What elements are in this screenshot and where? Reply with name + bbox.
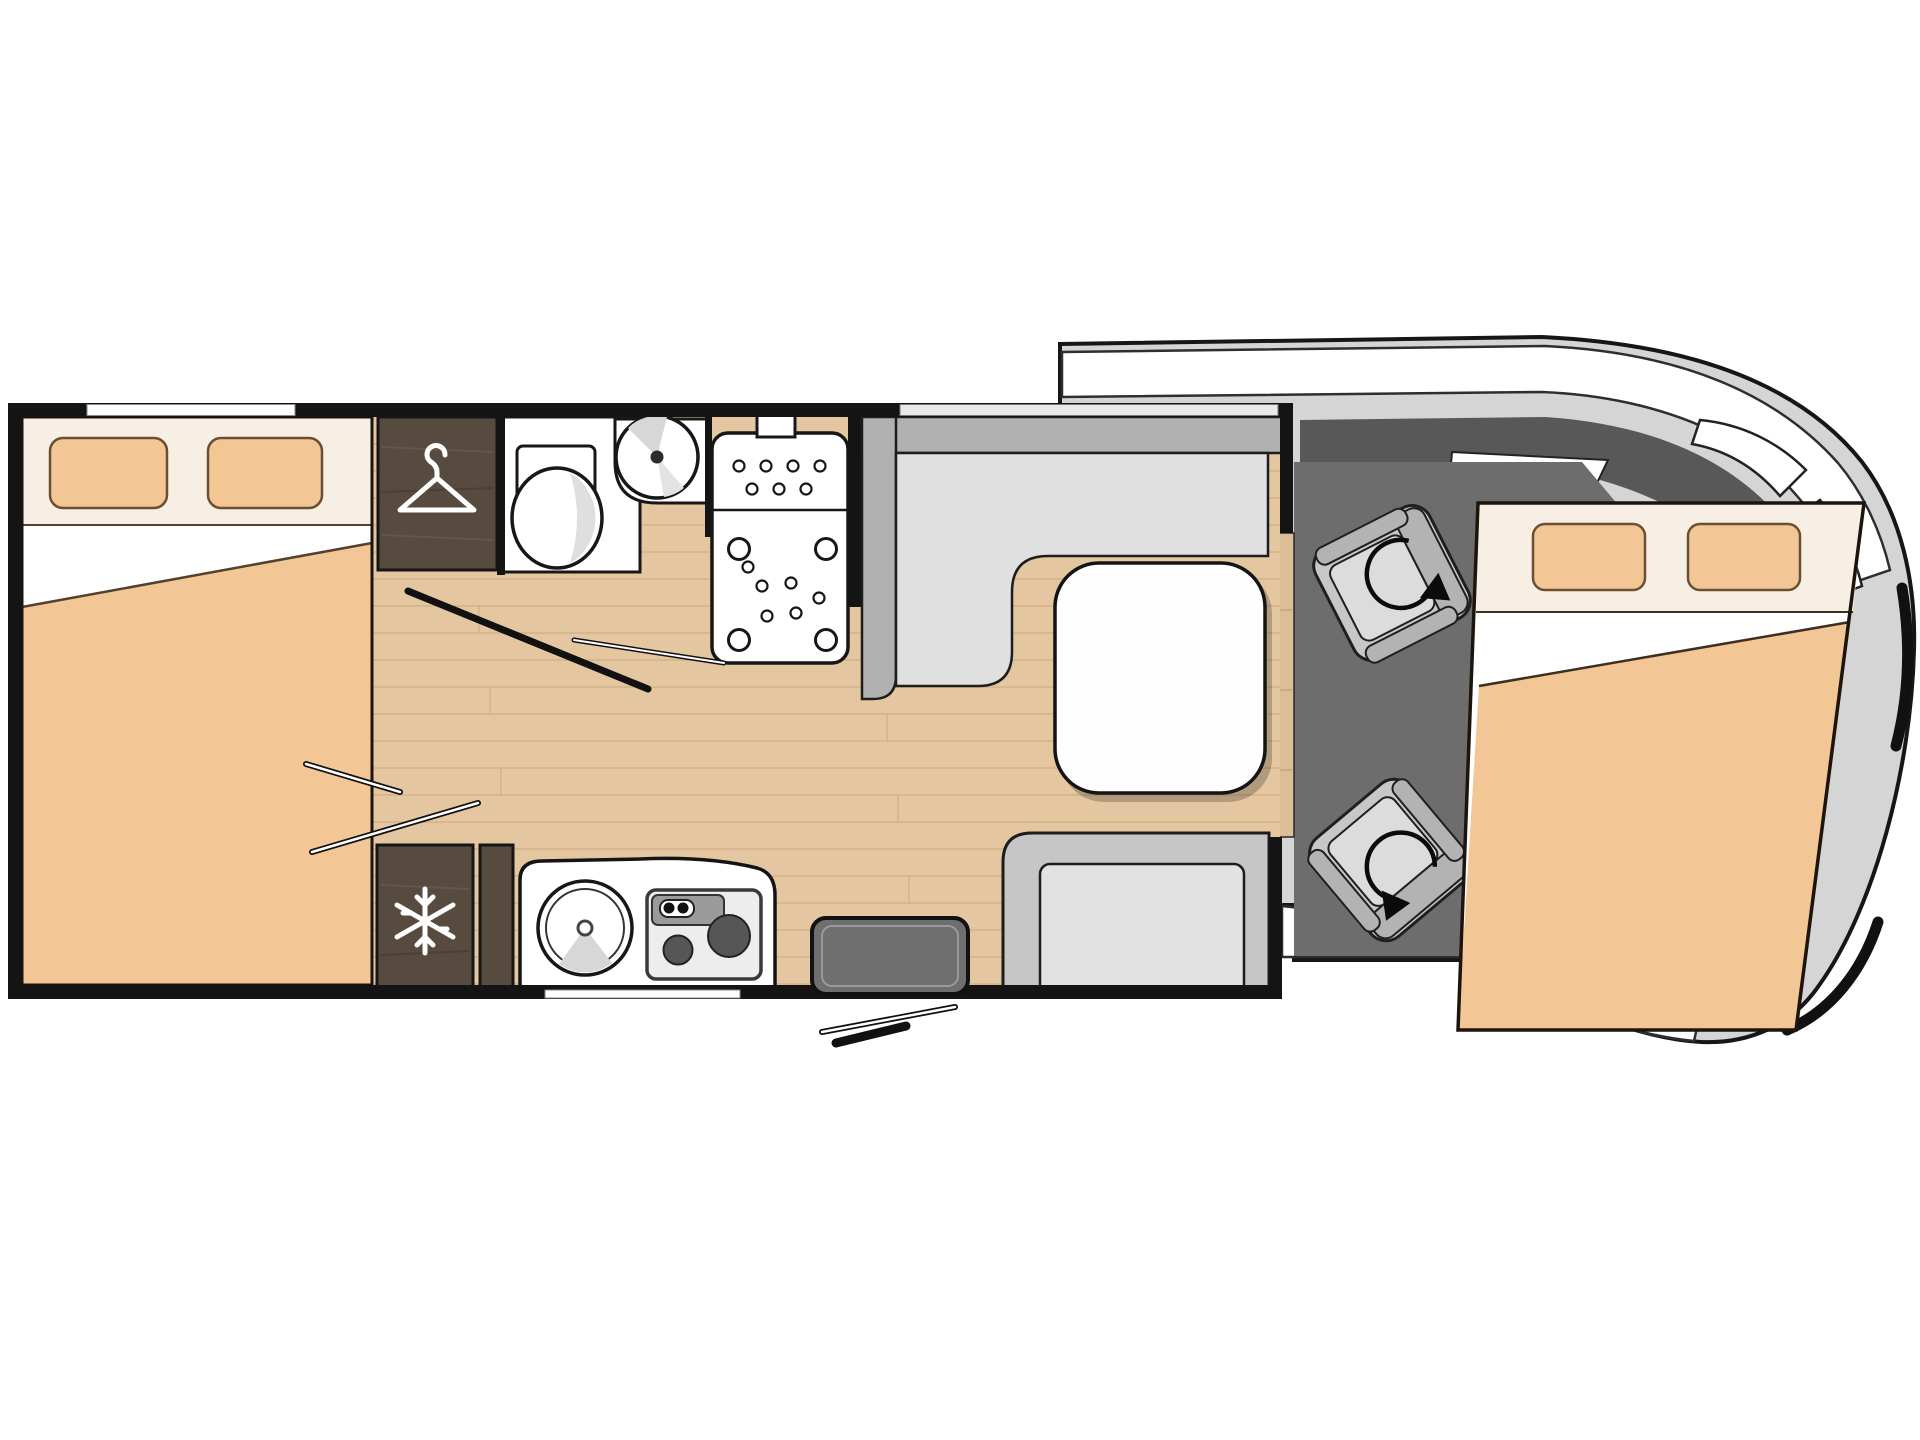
bed-duvet xyxy=(22,543,372,985)
washbasin xyxy=(615,416,708,503)
refrigerator xyxy=(377,845,473,997)
wardrobe xyxy=(378,417,497,570)
lounge-window xyxy=(900,405,1278,416)
kitchen-counter xyxy=(520,858,775,997)
pedestal-table xyxy=(1055,563,1272,802)
rear-double-bed xyxy=(22,417,372,985)
pillow xyxy=(50,438,167,508)
two-burner-hob xyxy=(647,890,761,979)
pillow xyxy=(1688,524,1800,590)
kitchen-sink xyxy=(538,881,632,975)
rear-bedroom-window xyxy=(87,405,295,416)
base-cabinet xyxy=(480,845,513,997)
service-hatch xyxy=(545,990,740,998)
side-bench xyxy=(1003,833,1269,997)
pillow xyxy=(1533,524,1645,590)
pillow xyxy=(208,438,322,508)
entry-door xyxy=(812,918,968,994)
shower xyxy=(705,413,862,663)
dropbed-duvet xyxy=(1458,622,1850,1030)
drop-down-bed xyxy=(1458,503,1864,1030)
floorplan-canvas xyxy=(0,0,1920,1440)
